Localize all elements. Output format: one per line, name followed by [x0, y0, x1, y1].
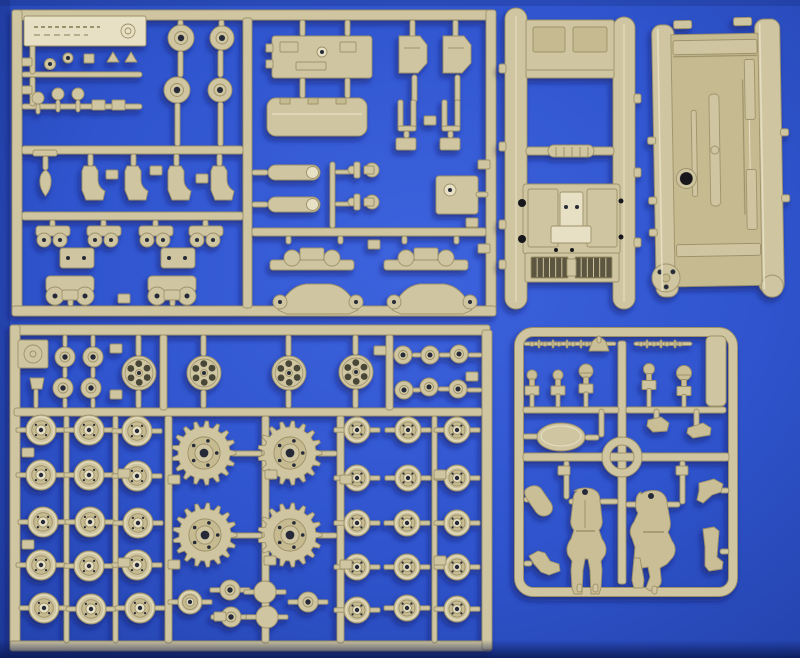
hull-tub-part: [646, 17, 792, 299]
backdrop-top-vignette: [0, 0, 800, 6]
kit-photo-canvas: [0, 0, 800, 658]
model-kit-photo: [0, 0, 800, 658]
backdrop-bottom-shadow: [0, 640, 800, 658]
backdrop-left-vignette: [0, 0, 10, 658]
